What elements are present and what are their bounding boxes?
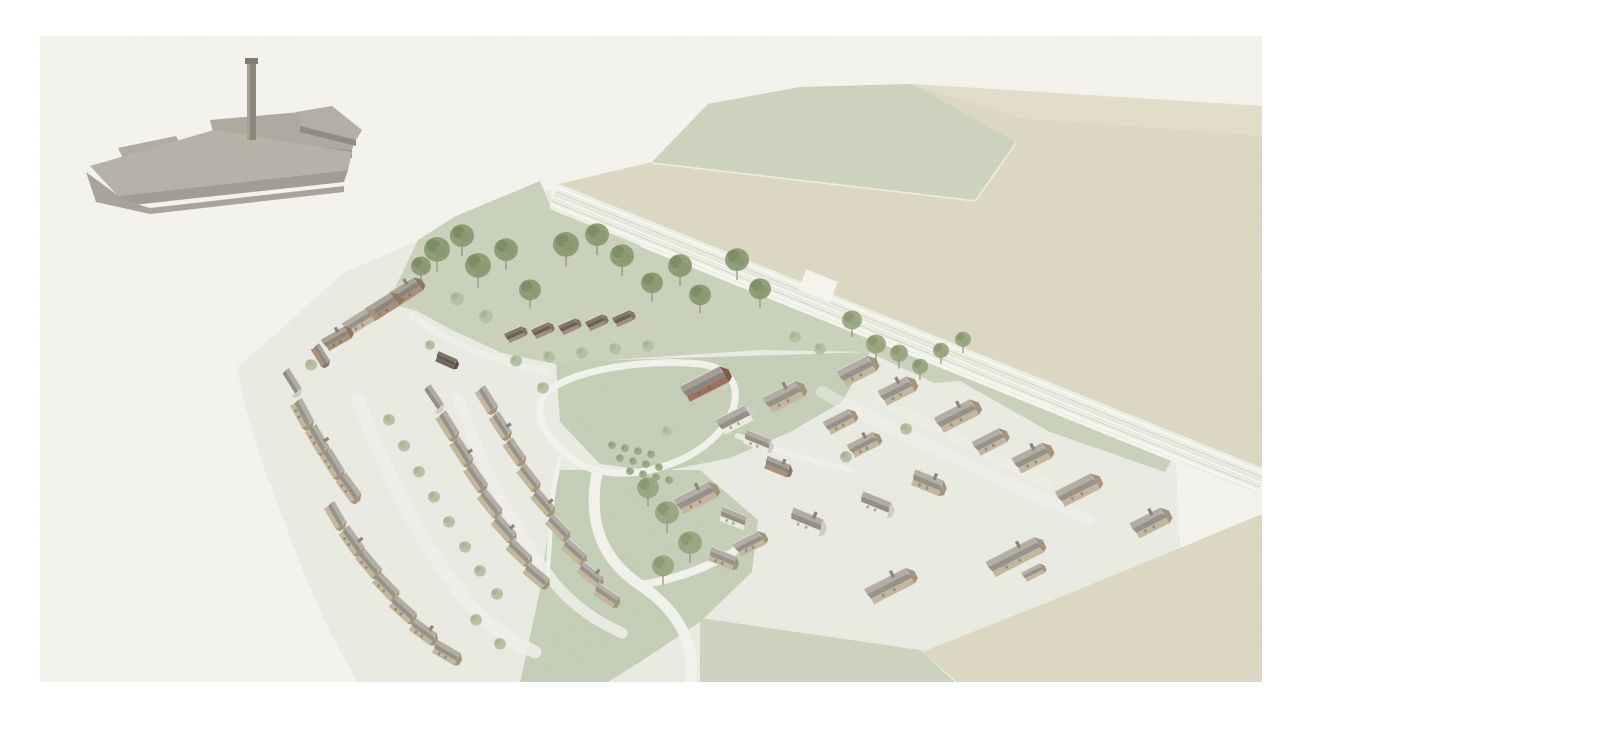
masterplan-svg: [0, 0, 1600, 732]
paper-grain: [40, 36, 1262, 682]
masterplan-illustration: [0, 0, 1600, 732]
